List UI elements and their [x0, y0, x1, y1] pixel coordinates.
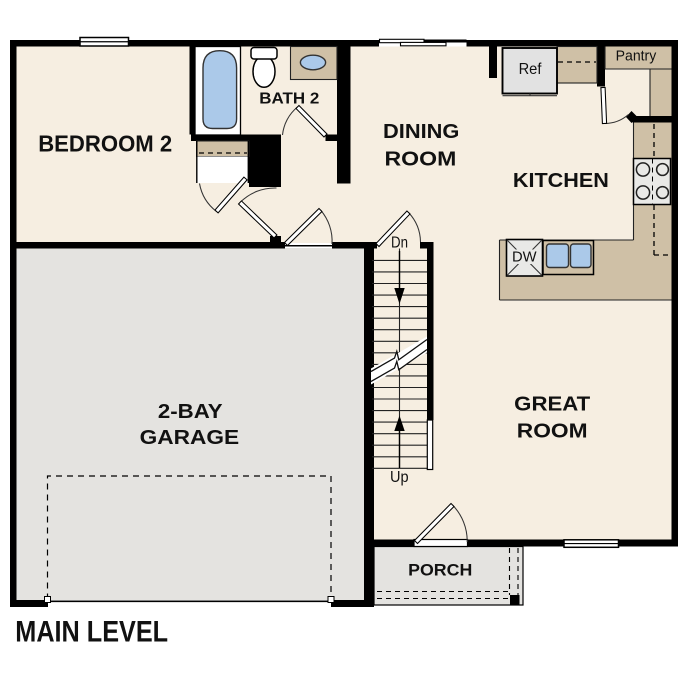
- svg-text:GREAT: GREAT: [514, 393, 590, 415]
- svg-text:PORCH: PORCH: [408, 560, 472, 579]
- svg-text:KITCHEN: KITCHEN: [513, 170, 609, 192]
- svg-text:DW: DW: [512, 248, 537, 265]
- svg-text:ROOM: ROOM: [517, 420, 588, 442]
- svg-text:Pantry: Pantry: [616, 48, 657, 64]
- svg-text:Ref: Ref: [519, 61, 542, 78]
- svg-text:Dn: Dn: [391, 235, 408, 252]
- svg-text:MAIN LEVEL: MAIN LEVEL: [15, 616, 168, 649]
- svg-text:GARAGE: GARAGE: [140, 427, 240, 449]
- svg-text:Up: Up: [390, 469, 409, 486]
- svg-text:DINING: DINING: [383, 121, 459, 143]
- svg-text:2-BAY: 2-BAY: [158, 401, 223, 423]
- svg-text:BATH 2: BATH 2: [259, 91, 319, 108]
- svg-text:ROOM: ROOM: [385, 148, 457, 170]
- svg-text:BEDROOM 2: BEDROOM 2: [38, 131, 172, 157]
